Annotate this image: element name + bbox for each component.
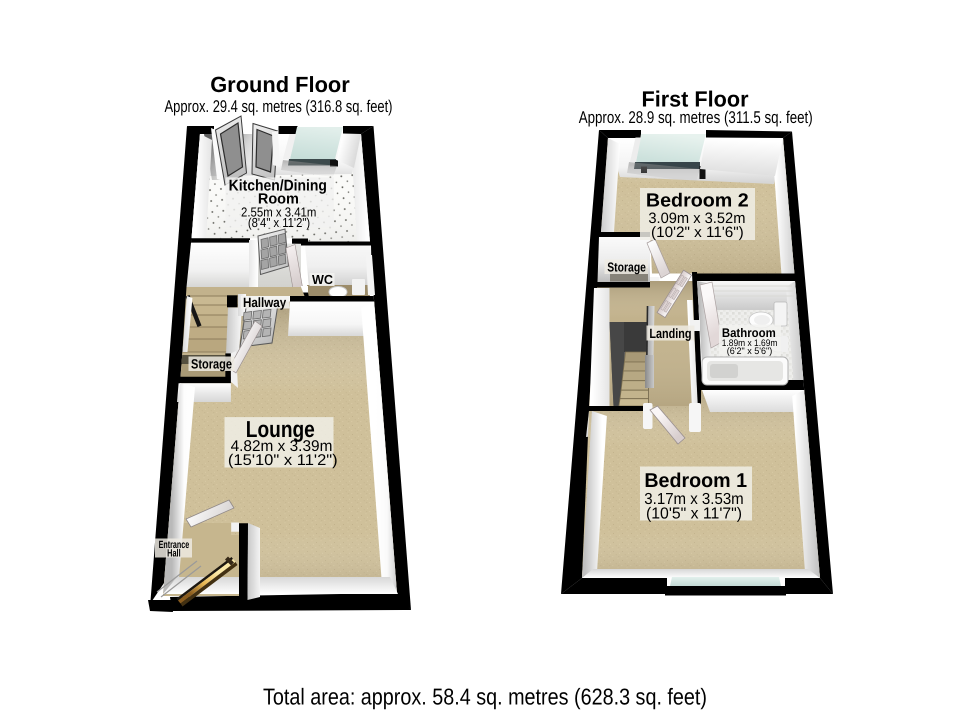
svg-text:Landing: Landing <box>649 326 691 341</box>
svg-text:(10'5" x 11'7"): (10'5" x 11'7") <box>646 506 742 523</box>
svg-text:Ground Floor: Ground Floor <box>210 72 350 97</box>
svg-text:Approx. 29.4 sq. metres (316.8: Approx. 29.4 sq. metres (316.8 sq. feet) <box>165 97 393 116</box>
svg-text:Approx. 28.9 sq. metres (311.5: Approx. 28.9 sq. metres (311.5 sq. feet) <box>579 108 813 127</box>
svg-text:WC: WC <box>312 272 334 287</box>
svg-text:Storage: Storage <box>191 357 232 372</box>
svg-text:(10'2" x 11'6"): (10'2" x 11'6") <box>651 224 744 241</box>
svg-text:Storage: Storage <box>607 260 646 275</box>
svg-text:Total area: approx. 58.4 sq. m: Total area: approx. 58.4 sq. metres (628… <box>263 684 707 710</box>
svg-text:Hall: Hall <box>167 547 181 559</box>
svg-text:Hallway: Hallway <box>243 295 287 310</box>
svg-text:(6'2" x 5'6"): (6'2" x 5'6") <box>727 346 773 357</box>
svg-text:Bedroom 2: Bedroom 2 <box>646 190 749 211</box>
svg-text:Bedroom 1: Bedroom 1 <box>644 470 747 492</box>
svg-text:(15'10" x 11'2"): (15'10" x 11'2") <box>228 452 338 469</box>
svg-text:(8'4" x 11'2"): (8'4" x 11'2") <box>248 215 310 230</box>
